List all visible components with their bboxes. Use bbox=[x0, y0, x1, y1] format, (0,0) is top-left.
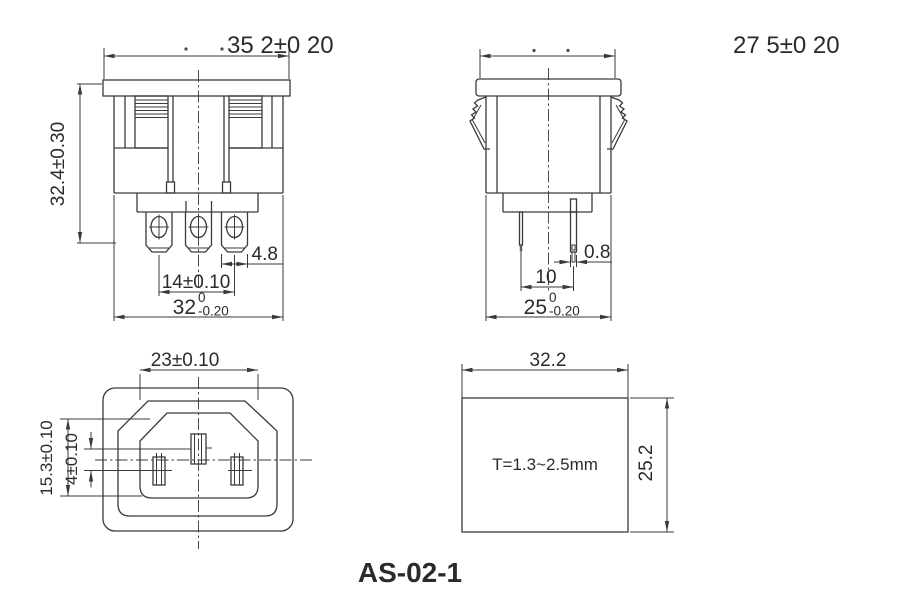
cutout-height-dim: 25.2 bbox=[636, 445, 657, 482]
terminal-left bbox=[146, 212, 172, 252]
face-view: 23±0.10 15.3±0.10 4±0.10 bbox=[37, 350, 312, 549]
side-body-width-tol-lower: -0.20 bbox=[549, 304, 580, 319]
cutout-view: 32.2 25.2 T=1.3~2.5mm bbox=[462, 350, 674, 532]
front-terminal-width-dim: 4.8 bbox=[252, 244, 278, 265]
terminal-block bbox=[137, 193, 258, 212]
engineering-drawing-page: 35 2±0 20 32.4±0.30 4.8 14±0.10 32 0 -0.… bbox=[0, 0, 900, 605]
face-outer-outline bbox=[103, 388, 293, 531]
front-overall-height-dim: 32.4±0.30 bbox=[48, 122, 69, 206]
latch-grille-left bbox=[135, 100, 168, 118]
cutout-width-dim: 32.2 bbox=[530, 350, 567, 371]
front-overall-width-dim: 35 2±0 20 bbox=[227, 32, 334, 59]
pin-slot-left bbox=[148, 453, 172, 485]
spring-clip-right bbox=[607, 97, 627, 149]
pin-right bbox=[571, 212, 577, 262]
front-body-width-dim: 32 bbox=[173, 296, 196, 319]
face-pin-row-offset-dim: 4±0.10 bbox=[62, 433, 81, 485]
front-body-width-tol-lower: -0.20 bbox=[198, 304, 229, 319]
pin-left bbox=[520, 212, 523, 251]
side-pin-thickness-dim: 0.8 bbox=[584, 242, 610, 263]
stray-decimal-dot bbox=[566, 49, 569, 52]
face-view-geometry bbox=[95, 377, 312, 549]
terminal-right bbox=[222, 212, 248, 252]
spring-clip-left bbox=[470, 97, 490, 149]
face-recess-outline bbox=[118, 401, 277, 516]
side-pin-spacing-dim: 10 bbox=[535, 267, 556, 288]
stray-decimal-dot bbox=[532, 49, 535, 52]
drawing-canvas: 35 2±0 20 32.4±0.30 4.8 14±0.10 32 0 -0.… bbox=[0, 0, 900, 605]
pin-slot-right bbox=[228, 453, 252, 485]
face-view-dimensions: 23±0.10 15.3±0.10 4±0.10 bbox=[37, 350, 258, 496]
panel-thickness-note: T=1.3~2.5mm bbox=[492, 455, 598, 474]
drawing-title: AS-02-1 bbox=[358, 557, 462, 588]
side-overall-width-dim: 27 5±0 20 bbox=[733, 32, 840, 59]
front-view: 35 2±0 20 32.4±0.30 4.8 14±0.10 32 0 -0.… bbox=[48, 32, 334, 321]
face-opening-height-dim: 15.3±0.10 bbox=[37, 420, 56, 496]
side-terminal-block bbox=[503, 193, 592, 212]
side-view: 27 5±0 20 0.8 10 25 0 -0.20 bbox=[470, 32, 840, 321]
cutout-dimensions: 32.2 25.2 bbox=[462, 350, 674, 532]
front-view-dimensions: 35 2±0 20 32.4±0.30 4.8 14±0.10 32 0 -0.… bbox=[48, 32, 334, 321]
latch-grille-right bbox=[229, 100, 262, 118]
face-opening-width-dim: 23±0.10 bbox=[151, 350, 220, 371]
pin-slot-center bbox=[191, 434, 212, 464]
front-terminal-spacing-dim: 14±0.10 bbox=[162, 272, 231, 293]
stray-decimal-dot bbox=[184, 47, 187, 50]
side-body-width-dim: 25 bbox=[524, 296, 547, 319]
stray-decimal-dot bbox=[220, 47, 223, 50]
side-view-dimensions: 27 5±0 20 0.8 10 25 0 -0.20 bbox=[480, 32, 840, 321]
